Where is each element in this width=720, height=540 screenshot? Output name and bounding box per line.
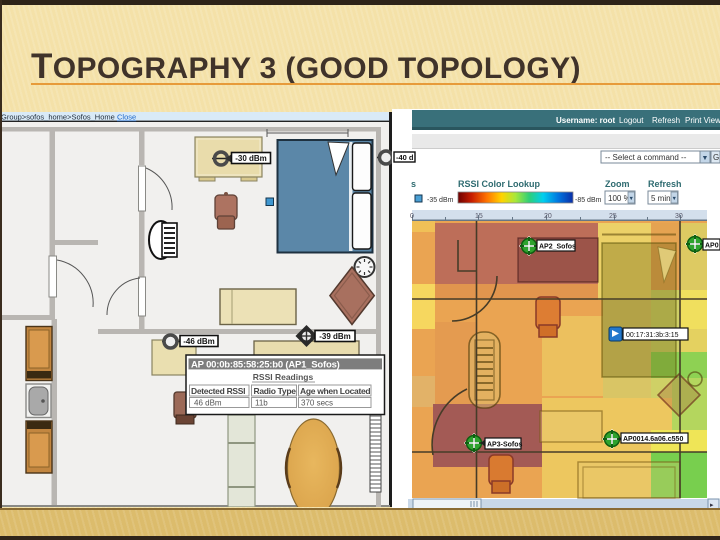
svg-text:Group>sofos_home>Sofos_Home: Group>sofos_home>Sofos_Home	[1, 113, 115, 122]
svg-text:46 dBm: 46 dBm	[194, 399, 222, 408]
svg-text:Username: root: Username: root	[556, 116, 615, 125]
svg-text:AP3-Sofos: AP3-Sofos	[487, 442, 523, 449]
svg-text:▼: ▼	[672, 196, 677, 202]
svg-text:370 secs: 370 secs	[301, 399, 333, 408]
svg-text:Age when Located: Age when Located	[300, 386, 370, 396]
svg-text:15: 15	[475, 213, 483, 220]
svg-text:00:17:31:3b:3:15: 00:17:31:3b:3:15	[626, 332, 679, 339]
svg-text:AP0014.6a06.c550: AP0014.6a06.c550	[623, 436, 683, 443]
svg-text:Print View: Print View	[685, 116, 720, 125]
svg-text:-- Select a command --: -- Select a command --	[605, 153, 687, 162]
svg-text:RSSI Readings: RSSI Readings	[253, 372, 314, 382]
svg-text:-85 dBm: -85 dBm	[575, 197, 602, 204]
svg-text:-40 d: -40 d	[396, 153, 414, 162]
svg-text:-30 dBm: -30 dBm	[235, 154, 267, 163]
svg-text:100 %: 100 %	[608, 194, 631, 203]
svg-text:Refresh: Refresh	[652, 116, 680, 125]
svg-text:-35 dBm: -35 dBm	[427, 197, 454, 204]
svg-text:Refresh: Refresh	[648, 179, 682, 189]
svg-text:AP 00:0b:85:58:25:b0 (AP1_Sofo: AP 00:0b:85:58:25:b0 (AP1_Sofos)	[191, 360, 340, 371]
svg-text:RSSI Color Lookup: RSSI Color Lookup	[458, 179, 541, 189]
svg-text:20: 20	[544, 213, 552, 220]
svg-text:▼: ▼	[629, 196, 634, 202]
svg-text:Radio Type: Radio Type	[254, 386, 297, 396]
svg-text:25: 25	[609, 213, 617, 220]
svg-text:-46 dBm: -46 dBm	[183, 337, 215, 346]
svg-text:11b: 11b	[255, 399, 268, 408]
svg-text:AP2_Sofos: AP2_Sofos	[539, 244, 576, 251]
svg-text:G: G	[713, 153, 719, 162]
svg-text:Detected RSSI: Detected RSSI	[191, 386, 245, 396]
svg-text:30: 30	[675, 213, 683, 220]
svg-text:AP0: AP0	[705, 243, 719, 250]
svg-text:Close: Close	[117, 113, 136, 122]
svg-text:0: 0	[410, 213, 414, 220]
svg-text:s: s	[411, 179, 416, 189]
svg-text:Zoom: Zoom	[605, 179, 630, 189]
svg-text:▼: ▼	[702, 155, 709, 162]
svg-text:5 min: 5 min	[651, 194, 671, 203]
svg-text:Logout: Logout	[619, 116, 644, 125]
svg-text:-39 dBm: -39 dBm	[319, 332, 351, 341]
